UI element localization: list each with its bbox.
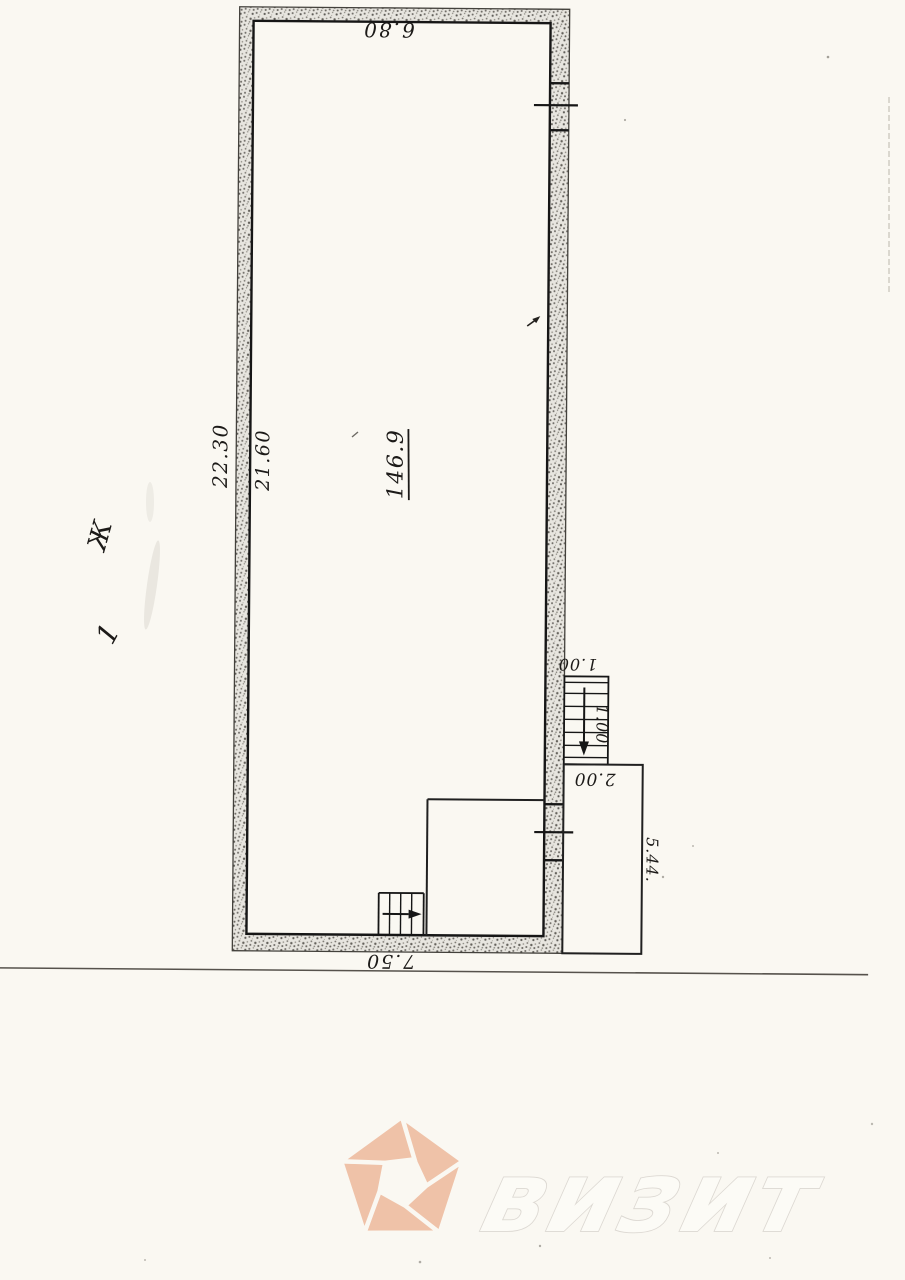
dim-annex-side: 5.44.: [642, 837, 661, 883]
dim-stair-width: 1.00: [558, 655, 598, 674]
scanned-floor-plan-page: визит: [0, 0, 905, 1280]
vizit-watermark-text: визит: [471, 1141, 834, 1254]
dim-top-width: 6.80: [362, 18, 415, 42]
room-area-underline: [408, 429, 410, 500]
dim-left-inner: 21.60: [252, 429, 274, 492]
dim-annex-top: 2.00: [574, 768, 617, 788]
dim-stair-depth: 1.00: [592, 705, 611, 745]
dim-bottom-width: 7.50: [365, 950, 415, 972]
paper-background: [0, 0, 905, 1280]
room-area-label: 146.9: [383, 429, 409, 500]
dim-left-outer: 22.30: [208, 423, 233, 489]
